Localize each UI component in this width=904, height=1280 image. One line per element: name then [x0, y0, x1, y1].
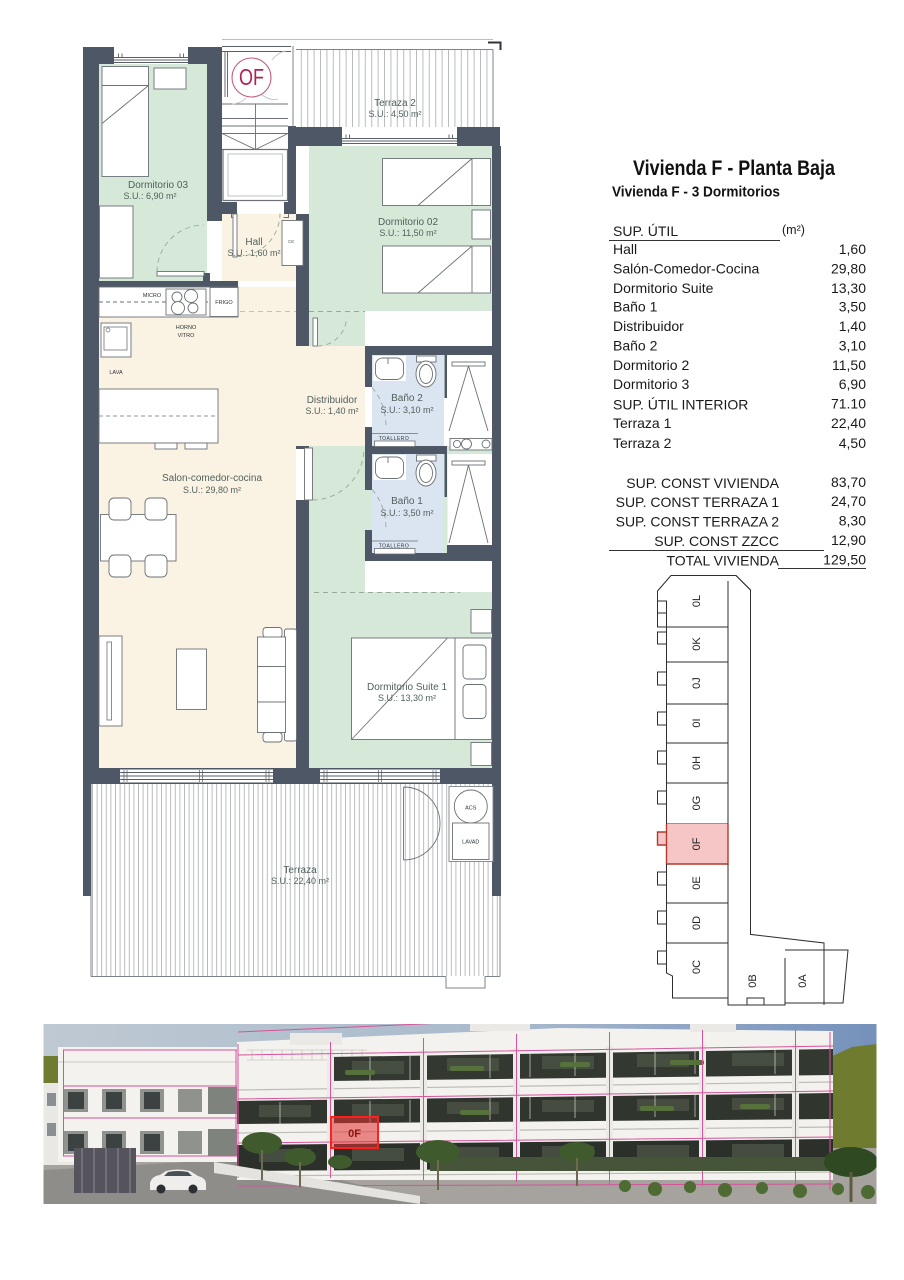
svg-text:83,70: 83,70 [831, 474, 866, 490]
svg-text:Dormitorio 3: Dormitorio 3 [613, 376, 689, 392]
svg-text:0F: 0F [691, 837, 703, 850]
svg-text:129,50: 129,50 [823, 551, 866, 567]
svg-text:0H: 0H [691, 756, 703, 770]
svg-text:Distribuidor: Distribuidor [307, 395, 358, 406]
svg-text:13,30: 13,30 [831, 280, 866, 296]
svg-text:0E: 0E [691, 876, 703, 889]
svg-text:(m²): (m²) [782, 223, 805, 237]
svg-text:S.U.: 6,90 m²: S.U.: 6,90 m² [123, 191, 176, 201]
svg-text:22,40: 22,40 [831, 415, 866, 431]
svg-text:Dormitorio Suite 1: Dormitorio Suite 1 [367, 682, 447, 693]
svg-text:0I: 0I [691, 718, 703, 727]
svg-text:HORNO: HORNO [176, 325, 197, 331]
svg-text:Hall: Hall [245, 237, 262, 248]
svg-text:SUP. ÚTIL INTERIOR: SUP. ÚTIL INTERIOR [613, 396, 748, 412]
svg-text:0B: 0B [747, 974, 759, 987]
svg-text:8,30: 8,30 [839, 512, 866, 528]
svg-text:Salón-Comedor-Cocina: Salón-Comedor-Cocina [613, 260, 760, 276]
svg-text:S.U.: 1,40 m²: S.U.: 1,40 m² [305, 406, 358, 416]
svg-text:0D: 0D [691, 916, 703, 930]
svg-text:SUP. CONST TERRAZA 1: SUP. CONST TERRAZA 1 [616, 494, 780, 510]
svg-text:Terraza 2: Terraza 2 [613, 435, 672, 451]
svg-text:Distribuidor: Distribuidor [613, 318, 684, 334]
svg-text:Dormitorio Suite: Dormitorio Suite [613, 280, 714, 296]
svg-text:S.U.: 11,50 m²: S.U.: 11,50 m² [379, 228, 436, 238]
svg-text:CE: CE [288, 239, 294, 244]
svg-text:VITRO: VITRO [178, 333, 196, 339]
svg-text:0C: 0C [691, 960, 703, 974]
svg-text:S.U.: 1,60 m²: S.U.: 1,60 m² [227, 248, 280, 258]
svg-text:Baño 2: Baño 2 [613, 337, 658, 353]
svg-text:3,50: 3,50 [839, 298, 866, 314]
svg-text:SUP. CONST TERRAZA 2: SUP. CONST TERRAZA 2 [616, 513, 780, 529]
svg-text:6,90: 6,90 [839, 376, 866, 392]
svg-text:Terraza 1: Terraza 1 [613, 415, 672, 431]
svg-text:Baño 1: Baño 1 [391, 496, 423, 507]
svg-text:SUP. ÚTIL: SUP. ÚTIL [613, 223, 678, 239]
svg-text:1,60: 1,60 [839, 241, 866, 257]
svg-text:Dormitorio 03: Dormitorio 03 [128, 180, 188, 191]
svg-text:FRIGO: FRIGO [215, 300, 233, 306]
svg-text:LAVAD: LAVAD [462, 840, 479, 846]
svg-text:11,50: 11,50 [832, 357, 866, 373]
svg-text:Terraza: Terraza [283, 865, 317, 876]
svg-text:ACS: ACS [465, 806, 477, 812]
svg-text:Baño 1: Baño 1 [613, 298, 658, 314]
svg-text:S.U.: 4,50 m²: S.U.: 4,50 m² [368, 109, 421, 119]
svg-text:0J: 0J [691, 677, 703, 689]
svg-text:Hall: Hall [613, 241, 637, 257]
svg-text:Dormitorio 2: Dormitorio 2 [613, 357, 689, 373]
svg-text:S.U.: 22,40 m²: S.U.: 22,40 m² [271, 876, 329, 886]
svg-text:S.U.: 3,10 m²: S.U.: 3,10 m² [380, 405, 433, 415]
svg-text:0L: 0L [691, 595, 703, 607]
svg-text:3,10: 3,10 [839, 337, 866, 353]
svg-text:24,70: 24,70 [831, 493, 866, 509]
svg-text:Dormitorio 02: Dormitorio 02 [378, 217, 438, 228]
svg-text:1,40: 1,40 [839, 318, 866, 334]
svg-text:Baño 2: Baño 2 [391, 393, 423, 404]
svg-text:4,50: 4,50 [839, 435, 866, 451]
svg-text:0A: 0A [797, 974, 809, 988]
svg-text:0K: 0K [691, 637, 703, 651]
svg-text:29,80: 29,80 [831, 260, 866, 276]
svg-text:Salon-comedor-cocina: Salon-comedor-cocina [162, 473, 262, 484]
svg-text:SUP. CONST VIVIENDA: SUP. CONST VIVIENDA [626, 475, 779, 491]
svg-text:12,90: 12,90 [831, 532, 866, 548]
svg-text:S.U.: 3,50 m²: S.U.: 3,50 m² [380, 508, 433, 518]
svg-text:OF: OF [239, 64, 264, 90]
svg-text:0G: 0G [691, 796, 703, 811]
svg-text:Terraza 2: Terraza 2 [374, 98, 416, 109]
svg-text:MICRO: MICRO [143, 293, 162, 299]
svg-text:0F: 0F [348, 1128, 361, 1140]
svg-text:S.U.: 13,30 m²: S.U.: 13,30 m² [378, 693, 436, 703]
svg-text:Vivienda F - Planta Baja: Vivienda F - Planta Baja [633, 156, 836, 180]
svg-text:TOTAL VIVIENDA: TOTAL VIVIENDA [666, 552, 779, 568]
svg-text:SUP. CONST ZZCC: SUP. CONST ZZCC [654, 533, 779, 549]
svg-text:71.10: 71.10 [831, 395, 866, 411]
svg-text:Vivienda F - 3 Dormitorios: Vivienda F - 3 Dormitorios [612, 184, 780, 201]
svg-text:LAVA: LAVA [109, 370, 123, 376]
svg-text:S.U.: 29,80 m²: S.U.: 29,80 m² [183, 485, 241, 495]
